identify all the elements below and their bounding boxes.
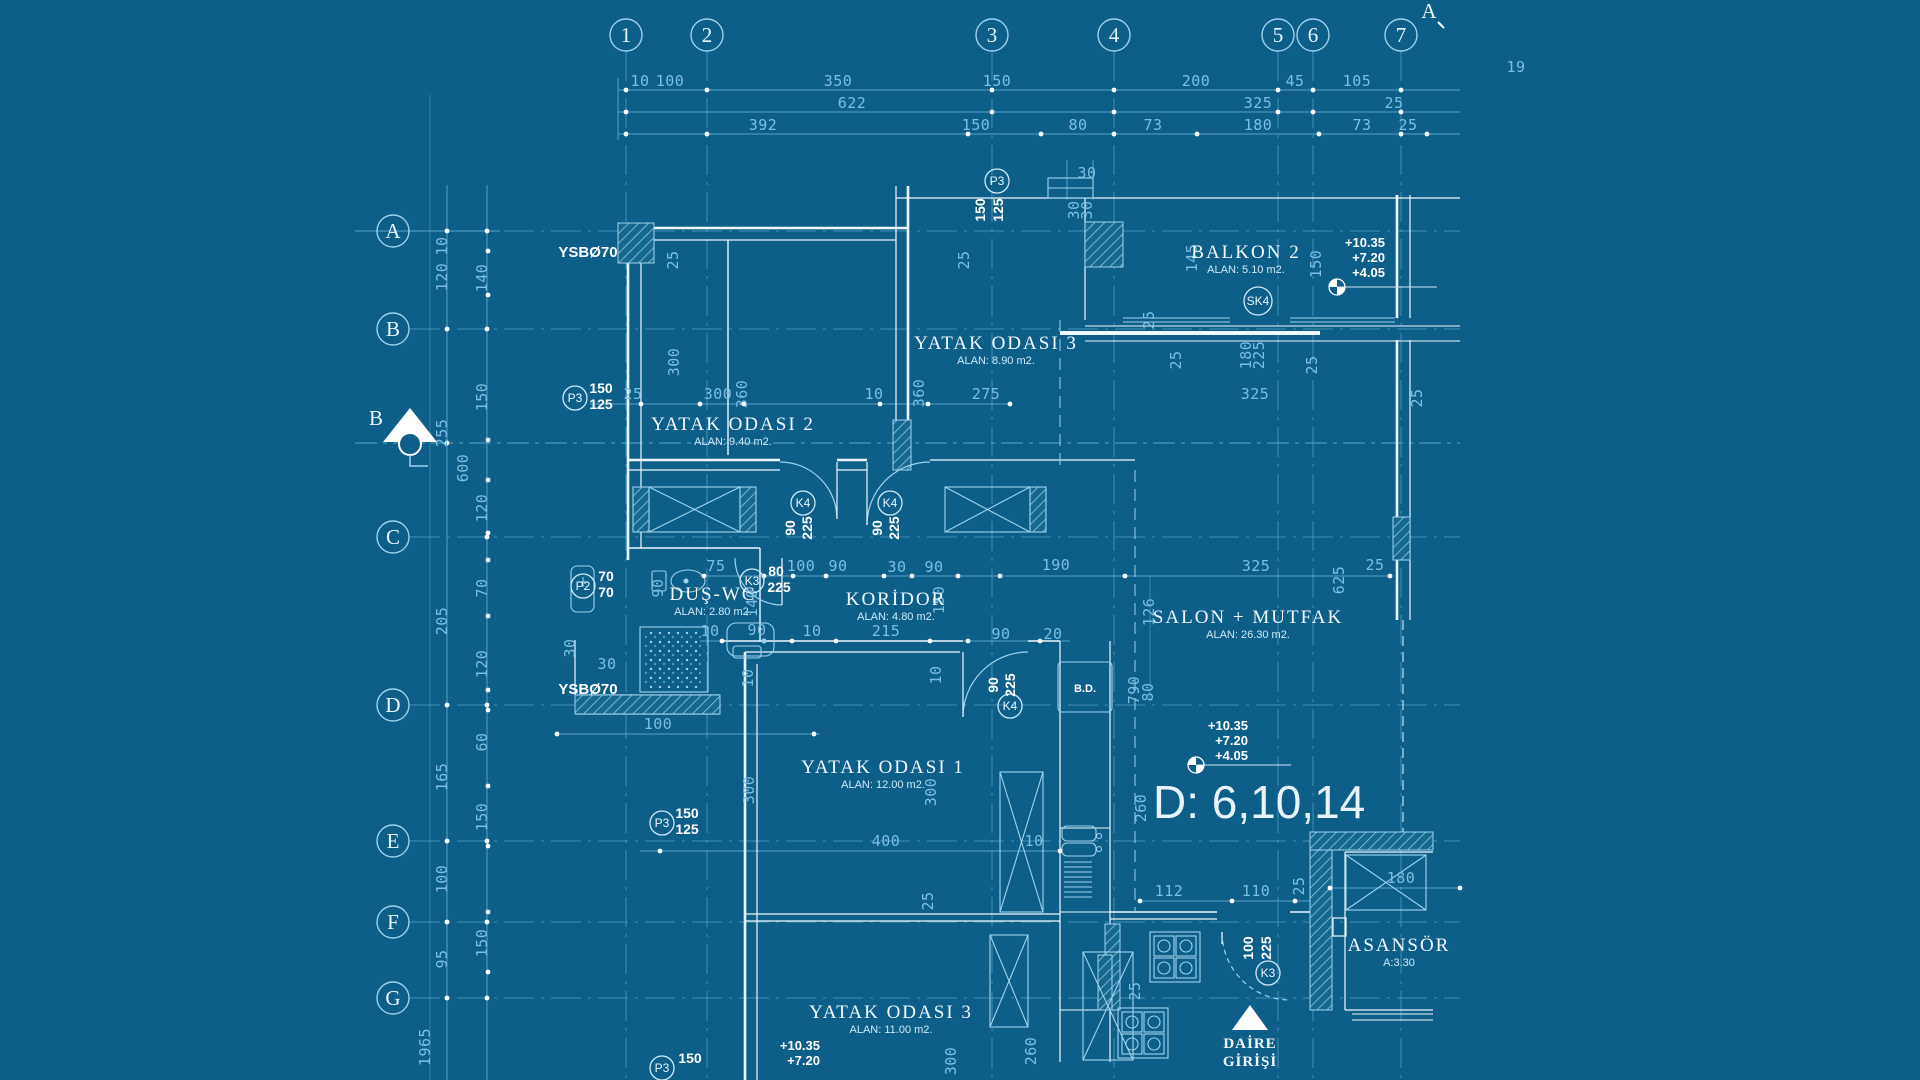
chain-dot <box>485 839 490 844</box>
chain-dot <box>445 703 450 708</box>
tag-label: P3 <box>990 174 1005 188</box>
dim-label: 30 <box>561 638 579 657</box>
dim-label: 73 <box>1352 116 1371 134</box>
dim-label: 25 <box>955 250 973 269</box>
elevation-value: +7.20 <box>1352 250 1385 265</box>
wardrobe <box>990 935 1028 1027</box>
room-name: DUŞ-WC <box>670 584 757 605</box>
chain-dot <box>1039 132 1044 137</box>
chain-dot <box>486 688 491 693</box>
room-area: ALAN: 11.00 m2. <box>850 1024 933 1036</box>
elevation-value: +10.35 <box>780 1038 820 1053</box>
dim-label: 25 <box>623 385 642 403</box>
dim-label: 30 <box>1077 164 1096 182</box>
elevation-value: +10.35 <box>1208 718 1248 733</box>
kitchen-sink <box>1062 826 1102 897</box>
apartment-number-label: D: 6,10,14 <box>1153 776 1365 828</box>
chain-dot <box>928 639 933 644</box>
plan-svg: 1234567ABCDEFG 1010035015020045105196223… <box>0 0 1920 1080</box>
chain-dot <box>1311 110 1316 115</box>
chain-dot <box>445 839 450 844</box>
tag-label: SK4 <box>1247 294 1270 308</box>
tag-label: K4 <box>1003 699 1018 713</box>
dim-label: 20 <box>1043 625 1062 643</box>
room-name: YATAK ODASI 3 <box>914 333 1078 354</box>
chain-dot <box>445 996 450 1001</box>
chain-dot <box>485 703 490 708</box>
dim-label: 90 <box>649 578 667 597</box>
wardrobe <box>633 487 756 532</box>
dim-label: 360 <box>733 380 751 409</box>
room-area: ALAN: 2.80 m2. <box>674 606 752 618</box>
dim-label: 120 <box>473 494 491 523</box>
chain-dot <box>1328 886 1333 891</box>
tag-value: 225 <box>1002 673 1018 697</box>
chain-dot <box>486 249 491 254</box>
chain-dot <box>486 970 491 975</box>
tag-value: 100 <box>1240 936 1256 960</box>
chain-dot <box>705 132 710 137</box>
tag-value: 90 <box>985 677 1001 693</box>
tag-value: 125 <box>589 396 613 412</box>
dim-label: 95 <box>433 949 451 968</box>
chain-dot <box>486 558 491 563</box>
chain-dot <box>485 996 490 1001</box>
entrance-label: GİRİŞİ <box>1223 1053 1277 1070</box>
dim-label: 25 <box>664 250 682 269</box>
tag-value: 150 <box>678 1050 702 1066</box>
dim-label: 100 <box>656 72 685 90</box>
dim-label: 150 <box>473 383 491 412</box>
dim-label: 255 <box>433 419 451 448</box>
elevation-value: +4.05 <box>1215 748 1248 763</box>
tag-label: K3 <box>1261 966 1276 980</box>
dim-label: 90 <box>991 625 1010 643</box>
tag-label: P3 <box>655 1061 670 1075</box>
tag-label: P2 <box>576 579 591 593</box>
dim-label: 90 <box>924 558 943 576</box>
chain-dot <box>1276 88 1281 93</box>
entrance-arrow <box>1232 1005 1268 1030</box>
note-label: YSBØ70 <box>558 681 617 698</box>
tag-value: 125 <box>675 821 699 837</box>
dim-label: 600 <box>454 454 472 483</box>
dim-label: 25 <box>1365 556 1384 574</box>
dim-label: 180 <box>1387 869 1416 887</box>
dim-label: 100 <box>644 715 673 733</box>
dim-label: 10 <box>739 668 757 687</box>
room-area: ALAN: 9.40 m2. <box>694 436 772 448</box>
chain-dot <box>834 639 839 644</box>
dim-label: 19 <box>1506 58 1525 76</box>
chain-dot <box>486 531 491 536</box>
chain-dot <box>1276 110 1281 115</box>
tag-value: 80 <box>768 563 784 579</box>
tag-value: 90 <box>782 520 798 536</box>
chain-dot <box>1458 886 1463 891</box>
room-area: A:3.30 <box>1383 957 1415 969</box>
chain-dot <box>812 732 817 737</box>
chain-dot <box>485 920 490 925</box>
dim-label: 300 <box>740 776 758 805</box>
dim-label: 10 <box>927 665 945 684</box>
dim-label: 25 <box>1167 350 1185 369</box>
tag-value: 225 <box>799 516 815 540</box>
room-name: BALKON 2 <box>1191 242 1300 263</box>
dim-label: 30 <box>1078 200 1096 219</box>
dim-label: 100 <box>787 557 816 575</box>
section-marker-a: A <box>1421 0 1444 28</box>
dim-label: 400 <box>872 832 901 850</box>
chain-dot <box>485 327 490 332</box>
chain-dot <box>1399 88 1404 93</box>
note-label: YSBØ70 <box>558 244 617 261</box>
elevation-symbol <box>1329 279 1437 295</box>
dim-label: 25 <box>919 891 937 910</box>
chain-dot <box>486 844 491 849</box>
grid-bubble-label: 4 <box>1109 23 1120 47</box>
tag-value: 225 <box>767 579 791 595</box>
grid-bubble-label: 5 <box>1273 23 1284 47</box>
tag-value: 125 <box>990 198 1006 222</box>
dim-label: 150 <box>962 116 991 134</box>
chain-dot <box>486 784 491 789</box>
elevation-value: +7.20 <box>787 1053 820 1068</box>
chain-dot <box>555 732 560 737</box>
dim-label: 180 <box>1244 116 1273 134</box>
chain-dot <box>485 535 490 540</box>
dim-label: 45 <box>1285 72 1304 90</box>
dim-label: 105 <box>1343 72 1372 90</box>
dim-label: 325 <box>1244 94 1273 112</box>
dim-label: 90 <box>747 621 766 639</box>
grid-bubble-label: 1 <box>621 23 632 47</box>
dim-label: 325 <box>1242 557 1271 575</box>
chain-dot <box>486 614 491 619</box>
chain-dot <box>624 132 629 137</box>
dim-label: 150 <box>1307 250 1325 279</box>
dim-label: 165 <box>433 763 451 792</box>
room-name: YATAK ODASI 1 <box>801 757 965 778</box>
dim-label: 25 <box>1398 116 1417 134</box>
tag-label: K4 <box>796 496 811 510</box>
dim-label: 10 <box>1024 832 1043 850</box>
room-area: ALAN: 8.90 m2. <box>957 355 1035 367</box>
dim-label: 350 <box>824 72 853 90</box>
chain-dot <box>790 639 795 644</box>
dim-label: 300 <box>665 348 683 377</box>
chain-dot <box>882 574 887 579</box>
chain-dot <box>705 88 710 93</box>
wardrobe <box>945 487 1046 532</box>
dim-label: 190 <box>1042 556 1071 574</box>
chain-dot <box>445 920 450 925</box>
room-area: ALAN: 4.80 m2. <box>857 611 935 623</box>
chain-dot <box>486 438 491 443</box>
dim-label: 205 <box>433 607 451 636</box>
room-area: ALAN: 26.30 m2. <box>1206 629 1290 641</box>
dim-label: 100 <box>433 865 451 894</box>
dim-label: 300 <box>704 385 733 403</box>
chain-dot <box>1112 110 1117 115</box>
grid-bubble-label: A <box>385 219 401 243</box>
tag-value: 225 <box>1258 936 1274 960</box>
grid-bubble-label: F <box>387 910 399 934</box>
grid-bubble-label: D <box>385 693 400 717</box>
dim-label: 1965 <box>416 1028 434 1066</box>
dim-label: 260 <box>1132 794 1150 823</box>
room-name: ASANSÖR <box>1348 935 1451 956</box>
chain-dot <box>1388 574 1393 579</box>
dim-label: 325 <box>1241 385 1270 403</box>
chain-dot <box>445 327 450 332</box>
tag-value: 150 <box>972 198 988 222</box>
chain-dot <box>486 708 491 713</box>
elevation-value: +4.05 <box>1352 265 1385 280</box>
dim-label: 260 <box>1022 1037 1040 1066</box>
room-name: SALON + MUTFAK <box>1153 607 1343 628</box>
dim-label: 10 <box>700 622 719 640</box>
note-label: B.D. <box>1074 683 1096 695</box>
room-area: ALAN: 5.10 m2. <box>1207 264 1285 276</box>
dim-label: 300 <box>942 1047 960 1076</box>
stove <box>1150 932 1200 982</box>
room-area: ALAN: 12.00 m2. <box>841 779 925 791</box>
chain-dot <box>1195 132 1200 137</box>
dim-label: 80 <box>1139 682 1157 701</box>
dim-label: 215 <box>872 622 901 640</box>
chain-dot <box>1058 849 1063 854</box>
tag-value: 70 <box>598 568 614 584</box>
chain-dot <box>486 293 491 298</box>
dim-label: 75 <box>706 557 725 575</box>
dim-label: 625 <box>1330 566 1348 595</box>
dim-label: 622 <box>838 94 867 112</box>
dim-label: 80 <box>1068 116 1087 134</box>
chain-dot <box>1293 899 1298 904</box>
dim-label: 200 <box>1182 72 1211 90</box>
dim-label: 120 <box>473 650 491 679</box>
dim-label: 10 <box>433 236 451 255</box>
chain-dot <box>1230 899 1235 904</box>
tag-value: 150 <box>589 380 613 396</box>
dim-label: 25 <box>1303 355 1321 374</box>
dim-label: 60 <box>473 732 491 751</box>
tag-label: P3 <box>568 391 583 405</box>
section-marker-b: B <box>369 406 437 466</box>
grid-bubble-label: 3 <box>987 23 998 47</box>
chain-dot <box>990 110 995 115</box>
chain-dot <box>624 110 629 115</box>
entrance-label: DAİRE <box>1223 1035 1276 1052</box>
dim-label: 150 <box>983 72 1012 90</box>
tag-label: K4 <box>883 496 898 510</box>
dim-label: 25 <box>1408 388 1426 407</box>
dim-label: 225 <box>1250 341 1268 370</box>
svg-text:A: A <box>1421 0 1437 23</box>
grid-bubble-label: G <box>385 986 400 1010</box>
dim-label: 110 <box>1242 882 1271 900</box>
stove <box>1118 1008 1168 1058</box>
dim-label: 150 <box>473 929 491 958</box>
grid-bubble-label: B <box>386 317 400 341</box>
blueprint-canvas: 1234567ABCDEFG 1010035015020045105196223… <box>0 0 1920 1080</box>
chain-dot <box>1138 899 1143 904</box>
dim-label: 360 <box>910 379 928 408</box>
chain-dot <box>658 849 663 854</box>
chain-dot <box>1311 88 1316 93</box>
room-name: YATAK ODASI 3 <box>809 1002 973 1023</box>
room-name: KORİDOR <box>846 589 947 610</box>
chain-dot <box>486 478 491 483</box>
dim-label: 25 <box>1290 876 1308 895</box>
elevation-value: +10.35 <box>1345 235 1385 250</box>
chain-dot <box>624 88 629 93</box>
grid-bubble-label: C <box>386 525 400 549</box>
grid-bubble-label: E <box>387 829 400 853</box>
dim-label: 140 <box>473 264 491 293</box>
grid-bubble-label: 2 <box>702 23 713 47</box>
chain-dot <box>956 574 961 579</box>
elevation-value: +7.20 <box>1215 733 1248 748</box>
dim-label: 392 <box>749 116 778 134</box>
chain-dot <box>910 574 915 579</box>
dim-label: 120 <box>433 263 451 292</box>
tag-label: P3 <box>655 816 670 830</box>
grid-bubble-label: 7 <box>1396 23 1407 47</box>
chain-dot <box>698 402 703 407</box>
chain-dot <box>1317 132 1322 137</box>
chain-dot <box>1123 574 1128 579</box>
dim-label: 275 <box>972 385 1001 403</box>
grid-bubble-label: 6 <box>1308 23 1319 47</box>
chain-dot <box>998 574 1003 579</box>
chain-dot <box>485 229 490 234</box>
tag-value: 70 <box>598 584 614 600</box>
tag-value: 225 <box>886 516 902 540</box>
dimension-labels: 1010035015020045105196223252539215080731… <box>416 58 1526 1075</box>
chain-dot <box>1112 132 1117 137</box>
dim-label: 10 <box>864 385 883 403</box>
dim-label: 73 <box>1143 116 1162 134</box>
dim-label: 30 <box>597 655 616 673</box>
dim-label: 10 <box>802 622 821 640</box>
dim-label: 25 <box>1384 94 1403 112</box>
dim-label: 30 <box>887 558 906 576</box>
dim-label: 112 <box>1155 882 1184 900</box>
dim-label: 70 <box>473 578 491 597</box>
chain-dot <box>486 910 491 915</box>
chain-dot <box>1112 88 1117 93</box>
tag-value: 90 <box>869 520 885 536</box>
dim-label: 90 <box>828 557 847 575</box>
svg-text:B: B <box>369 406 383 430</box>
room-name: YATAK ODASI 2 <box>651 414 815 435</box>
tag-value: 150 <box>675 805 699 821</box>
chain-dot <box>445 229 450 234</box>
chain-dot <box>966 639 971 644</box>
chain-dot <box>1038 639 1043 644</box>
chain-dot <box>1008 402 1013 407</box>
dim-label: 150 <box>473 803 491 832</box>
dim-label: 25 <box>1126 981 1144 1000</box>
dim-label: 25 <box>1140 310 1158 329</box>
chain-dot <box>1425 132 1430 137</box>
dim-label: 10 <box>630 72 649 90</box>
chain-dot <box>720 639 725 644</box>
